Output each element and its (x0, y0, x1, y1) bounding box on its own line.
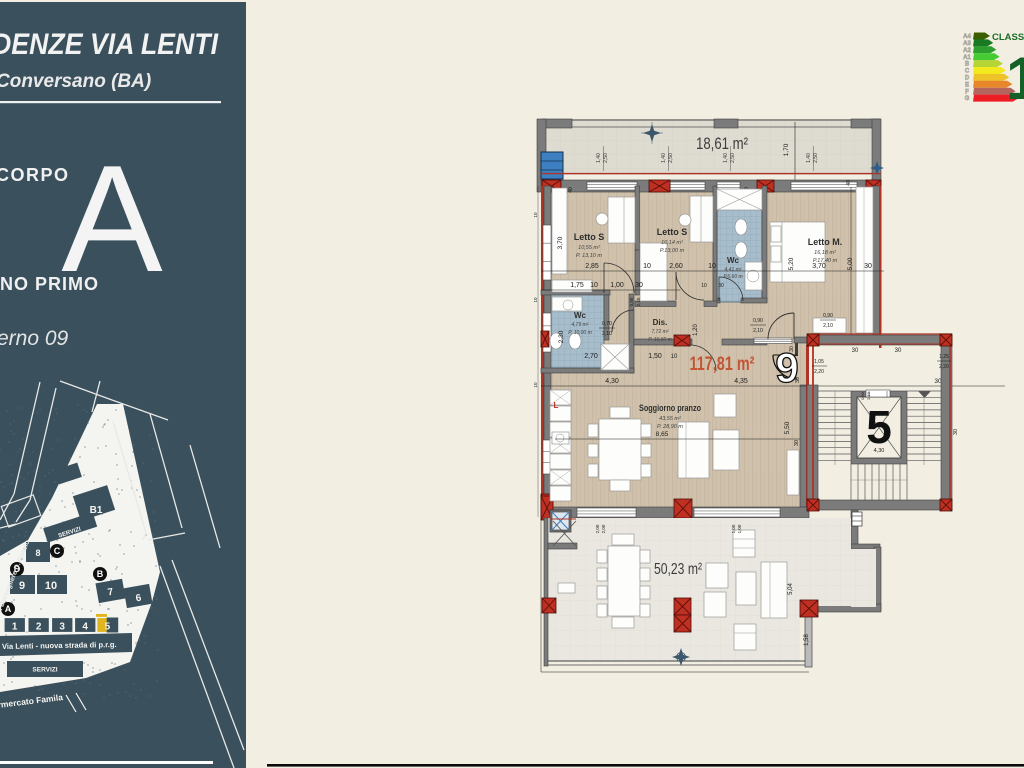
svg-text:CORPO: CORPO (0, 165, 70, 185)
svg-text:16,18 m²: 16,18 m² (814, 250, 836, 256)
svg-text:10: 10 (533, 382, 538, 388)
svg-text:50,23 m²: 50,23 m² (654, 561, 703, 578)
svg-text:1,40: 1,40 (723, 153, 729, 163)
svg-text:1: 1 (1006, 45, 1024, 112)
svg-text:30: 30 (789, 346, 795, 352)
svg-text:P. 10,00 m: P. 10,00 m (568, 330, 592, 336)
svg-text:2,30: 2,30 (558, 330, 565, 343)
svg-text:Wc: Wc (574, 311, 587, 320)
svg-text:A: A (5, 604, 12, 614)
svg-text:7,72 m²: 7,72 m² (652, 329, 669, 335)
svg-text:L: L (554, 401, 559, 410)
svg-text:30: 30 (795, 377, 801, 383)
svg-text:C: C (54, 546, 61, 556)
svg-text:DENZE VIA LENTI: DENZE VIA LENTI (0, 28, 219, 61)
svg-text:P. 13,10 m: P. 13,10 m (576, 253, 602, 259)
svg-text:4,35: 4,35 (734, 378, 748, 385)
svg-text:10: 10 (533, 297, 538, 303)
svg-text:2,50: 2,50 (668, 153, 674, 163)
svg-text:2: 2 (36, 622, 42, 633)
svg-text:0,80: 0,80 (629, 297, 634, 306)
svg-text:4,30: 4,30 (874, 448, 885, 454)
svg-text:A3: A3 (963, 41, 971, 47)
svg-text:30: 30 (794, 440, 800, 446)
svg-text:A4: A4 (963, 34, 971, 40)
svg-text:1,00: 1,00 (731, 524, 736, 533)
svg-text:0,90: 0,90 (860, 391, 865, 400)
svg-text:5: 5 (866, 401, 892, 453)
svg-text:G: G (965, 96, 970, 102)
svg-text:1,70: 1,70 (783, 143, 790, 156)
svg-text:Dis.: Dis. (653, 318, 668, 327)
svg-text:5,04: 5,04 (788, 583, 794, 595)
svg-text:0,90: 0,90 (753, 318, 763, 324)
svg-text:erno 09: erno 09 (0, 327, 69, 350)
svg-text:1: 1 (12, 622, 18, 633)
svg-text:10: 10 (590, 282, 598, 289)
svg-text:5,50: 5,50 (784, 421, 791, 434)
svg-text:2,85: 2,85 (585, 263, 599, 270)
svg-text:30: 30 (635, 282, 643, 289)
svg-text:1,00: 1,00 (737, 524, 742, 533)
svg-text:10: 10 (45, 580, 57, 592)
svg-text:4,41 m²: 4,41 m² (725, 267, 742, 273)
svg-text:1,25: 1,25 (939, 354, 949, 360)
svg-text:Letto S: Letto S (657, 227, 688, 237)
svg-text:8: 8 (35, 548, 40, 558)
svg-text:2,50: 2,50 (603, 153, 609, 163)
svg-text:1,05: 1,05 (814, 359, 824, 365)
svg-text:30: 30 (895, 348, 902, 354)
svg-text:C: C (965, 69, 970, 75)
svg-text:3,70: 3,70 (812, 263, 826, 270)
svg-text:30: 30 (953, 429, 959, 435)
svg-text:Letto M.: Letto M. (808, 237, 843, 247)
svg-text:B: B (97, 569, 104, 579)
svg-text:10: 10 (701, 283, 707, 289)
svg-text:Wc: Wc (727, 256, 740, 265)
svg-text:10: 10 (533, 212, 538, 218)
svg-text:P. 28,90 m: P. 28,90 m (657, 424, 683, 430)
svg-text:Soggiorno pranzo: Soggiorno pranzo (639, 403, 701, 413)
svg-text:4,30: 4,30 (605, 378, 619, 385)
svg-text:2,50: 2,50 (813, 153, 819, 163)
svg-text:2,20: 2,20 (814, 369, 824, 375)
svg-text:10,55 m²: 10,55 m² (578, 245, 600, 251)
svg-text:CLASSE: CLASSE (992, 32, 1024, 43)
svg-text:30: 30 (718, 283, 724, 289)
svg-text:Conversano (BA): Conversano (BA) (0, 71, 151, 92)
svg-text:30: 30 (864, 263, 872, 270)
svg-text:10,14 m²: 10,14 m² (661, 240, 683, 246)
svg-text:5,20: 5,20 (788, 257, 795, 270)
svg-text:Letto S: Letto S (574, 232, 605, 242)
svg-text:SERVIZI: SERVIZI (32, 667, 57, 674)
svg-text:9: 9 (19, 580, 25, 592)
svg-text:2,60: 2,60 (669, 263, 683, 270)
svg-text:2,00: 2,00 (595, 524, 600, 533)
svg-text:10: 10 (708, 263, 716, 270)
svg-text:117,81 m²: 117,81 m² (690, 354, 755, 375)
svg-text:A1: A1 (963, 55, 971, 61)
svg-text:8,65: 8,65 (656, 431, 669, 438)
svg-text:1,50: 1,50 (648, 353, 662, 360)
svg-text:2,10: 2,10 (823, 323, 833, 329)
svg-text:P. 15,60 m: P. 15,60 m (648, 337, 672, 343)
svg-text:10: 10 (671, 354, 678, 360)
svg-text:P.13,00 m: P.13,00 m (660, 248, 685, 254)
svg-text:5: 5 (105, 622, 111, 633)
svg-text:ANO PRIMO: ANO PRIMO (0, 274, 99, 294)
svg-text:F: F (965, 89, 969, 95)
svg-text:2,70: 2,70 (584, 353, 598, 360)
svg-text:2,20: 2,20 (939, 364, 949, 370)
svg-text:40: 40 (568, 187, 574, 193)
svg-text:B1: B1 (90, 505, 103, 516)
svg-text:10: 10 (643, 263, 651, 270)
svg-text:2,10: 2,10 (602, 331, 612, 337)
svg-text:1,40: 1,40 (596, 153, 602, 163)
svg-text:2,50: 2,50 (730, 153, 736, 163)
svg-text:E: E (965, 82, 969, 88)
svg-text:2,10: 2,10 (636, 297, 641, 306)
svg-text:30: 30 (852, 348, 859, 354)
svg-text:3,70: 3,70 (557, 236, 564, 249)
svg-text:2,00: 2,00 (601, 524, 606, 533)
svg-text:A2: A2 (963, 48, 971, 54)
svg-text:1,75: 1,75 (570, 282, 584, 289)
svg-text:5,00: 5,00 (847, 257, 854, 270)
svg-text:1,58: 1,58 (804, 634, 810, 646)
svg-text:B: B (965, 62, 970, 68)
svg-text:1,40: 1,40 (806, 153, 812, 163)
svg-text:1,00: 1,00 (610, 282, 624, 289)
svg-text:4,79 m²: 4,79 m² (572, 322, 589, 328)
svg-text:D: D (965, 76, 970, 82)
svg-text:1,40: 1,40 (661, 153, 667, 163)
svg-text:0,90: 0,90 (823, 313, 833, 319)
svg-text:2,10: 2,10 (866, 391, 871, 400)
svg-text:3: 3 (59, 622, 65, 633)
svg-text:2,10: 2,10 (753, 328, 763, 334)
svg-text:P.6,60 m: P.6,60 m (723, 274, 742, 280)
svg-text:0,70: 0,70 (602, 321, 612, 327)
svg-text:18,61 m²: 18,61 m² (696, 135, 748, 153)
svg-text:43,55 m²: 43,55 m² (659, 416, 681, 422)
svg-text:1,20: 1,20 (693, 324, 699, 336)
svg-text:4: 4 (82, 622, 88, 633)
svg-text:40: 40 (846, 180, 852, 186)
